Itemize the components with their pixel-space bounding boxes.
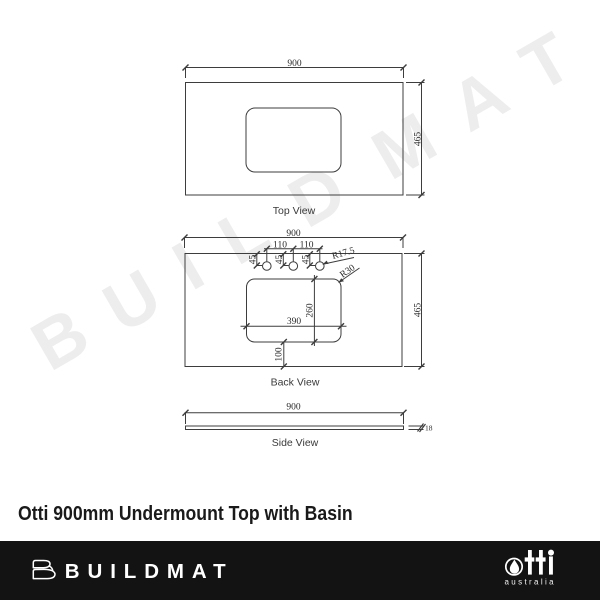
svg-text:390: 390 xyxy=(287,317,302,327)
svg-text:45: 45 xyxy=(249,255,259,265)
svg-text:australia: australia xyxy=(505,577,556,586)
svg-text:100: 100 xyxy=(275,347,285,362)
svg-text:Back View: Back View xyxy=(271,377,320,389)
svg-text:Side View: Side View xyxy=(272,437,319,449)
svg-text:45: 45 xyxy=(302,255,312,265)
svg-text:260: 260 xyxy=(305,303,315,318)
svg-text:R30: R30 xyxy=(338,263,357,280)
svg-text:465: 465 xyxy=(414,132,424,147)
svg-text:110: 110 xyxy=(300,240,314,250)
svg-text:900: 900 xyxy=(287,59,302,69)
svg-text:900: 900 xyxy=(286,403,301,413)
svg-text:465: 465 xyxy=(414,303,424,318)
svg-text:900: 900 xyxy=(286,229,301,239)
svg-text:45: 45 xyxy=(275,255,285,265)
svg-text:Top View: Top View xyxy=(273,205,316,217)
svg-text:110: 110 xyxy=(273,240,287,250)
svg-text:18: 18 xyxy=(425,424,433,433)
